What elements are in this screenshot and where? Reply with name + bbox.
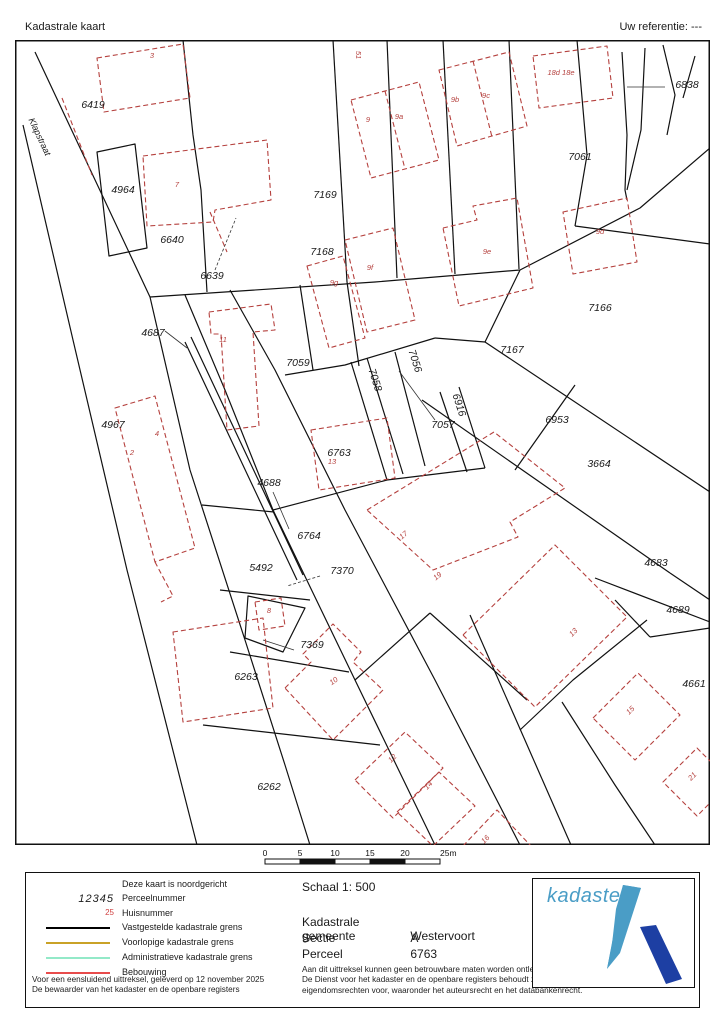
parcel-number-label: 6764 bbox=[297, 530, 321, 542]
parcel-number-label: 7370 bbox=[330, 565, 354, 577]
cadastral-map: 6419496466406639716971687061683871667167… bbox=[15, 40, 710, 845]
parcel-number-label: 6640 bbox=[160, 234, 184, 246]
scale-bar: 0510152025m bbox=[255, 846, 465, 872]
info-row: Sectie A bbox=[302, 931, 418, 945]
info-value: 6763 bbox=[410, 947, 437, 961]
scale-bar-segment bbox=[300, 859, 335, 864]
legend-symbol-housenumber: 25 bbox=[32, 908, 114, 917]
legend-line-sample-vastgesteld bbox=[46, 927, 110, 929]
legend-symbol-parcelnumber: 12345 bbox=[32, 893, 114, 905]
parcel-number-label: 7059 bbox=[286, 357, 310, 369]
info-row: Perceel 6763 bbox=[302, 947, 437, 961]
parcel-number-label: 7369 bbox=[300, 639, 324, 651]
legend-line-sample-bebouwing bbox=[46, 972, 110, 974]
house-number-label: 51 bbox=[354, 51, 363, 59]
legend-label: Voorlopige kadastrale grens bbox=[122, 937, 234, 947]
house-number-label: 9b bbox=[451, 95, 459, 104]
disclaimer-line: De bewaarder van het kadaster en de open… bbox=[32, 985, 292, 995]
kadaster-logo-box: kadaster bbox=[532, 878, 695, 988]
scale-bar-tick-label: 5 bbox=[298, 848, 303, 858]
reference-label: Uw referentie: --- bbox=[619, 21, 702, 33]
map-frame bbox=[16, 41, 710, 845]
parcel-number-label: 4688 bbox=[257, 477, 281, 489]
info-value: A bbox=[410, 931, 418, 945]
logo-dark-stroke bbox=[640, 925, 682, 984]
north-note: Deze kaart is noordgericht bbox=[122, 879, 227, 889]
scale-bar-segment bbox=[370, 859, 405, 864]
house-number-label: 9e bbox=[483, 247, 491, 256]
parcel-number-label: 7061 bbox=[568, 151, 591, 163]
map-area: 6419496466406639716971687061683871667167… bbox=[15, 40, 710, 845]
house-number-label: 11 bbox=[219, 335, 227, 344]
house-number-label: 4 bbox=[155, 429, 159, 438]
house-number-label: 9f bbox=[367, 263, 374, 272]
parcel-number-label: 7169 bbox=[313, 189, 337, 201]
parcel-number-label: 6639 bbox=[200, 270, 224, 282]
parcel-number-label: 6838 bbox=[675, 79, 699, 91]
disclaimer-left: Voor een eensluidend uittreksel, gelever… bbox=[32, 975, 292, 996]
cadastral-extract-page: { "header": { "title": "Kadastrale kaart… bbox=[0, 0, 724, 1024]
info-label: Sectie bbox=[302, 931, 407, 945]
disclaimer-line: Voor een eensluidend uittreksel, gelever… bbox=[32, 975, 292, 985]
scale-bar-tick-label: 15 bbox=[365, 848, 375, 858]
parcel-number-label: 4687 bbox=[141, 327, 166, 339]
house-number-label: 9g bbox=[330, 278, 339, 287]
parcel-number-label: 6263 bbox=[234, 671, 258, 683]
parcel-number-label: 3664 bbox=[587, 458, 611, 470]
scale-bar-segment bbox=[265, 859, 300, 864]
parcel-number-label: 4967 bbox=[101, 419, 126, 431]
house-number-label: 9d bbox=[596, 227, 605, 236]
scale-bar-tick-label: 20 bbox=[400, 848, 410, 858]
parcel-number-label: 7166 bbox=[588, 302, 612, 314]
scale-bar-segment bbox=[335, 859, 370, 864]
legend-line-sample-voorlopig bbox=[46, 942, 110, 944]
parcel-number-label: 6419 bbox=[81, 99, 105, 111]
house-number-label: 9a bbox=[395, 112, 403, 121]
parcel-number-label: 4661 bbox=[682, 678, 705, 690]
parcel-number-label: 7168 bbox=[310, 246, 334, 258]
info-value: Westervoort bbox=[410, 929, 474, 943]
logo-light-stroke2 bbox=[607, 885, 641, 969]
legend-label: Perceelnummer bbox=[122, 893, 186, 903]
parcel-number-label: 4964 bbox=[111, 184, 135, 196]
legend-label: Vastgestelde kadastrale grens bbox=[122, 922, 242, 932]
scale-bar-segment bbox=[405, 859, 440, 864]
scale-bar-tick-label: 25m bbox=[440, 848, 457, 858]
house-number-label: 13 bbox=[328, 457, 337, 466]
parcel-number-label: 7057 bbox=[431, 419, 456, 431]
house-number-label: 2 bbox=[129, 448, 135, 457]
scale-bar-tick-label: 10 bbox=[330, 848, 340, 858]
parcel-number-label: 6262 bbox=[257, 781, 281, 793]
legend-line-sample-administratief bbox=[46, 957, 110, 959]
parcel-number-label: 4683 bbox=[644, 557, 668, 569]
scale-text: Schaal 1: 500 bbox=[302, 880, 375, 894]
kadaster-logo-mark bbox=[533, 879, 693, 986]
footer-panel: Deze kaart is noordgericht 12345 Perceel… bbox=[25, 872, 700, 1008]
house-number-label: 18d 18e bbox=[547, 68, 574, 77]
page-title: Kadastrale kaart bbox=[25, 21, 105, 33]
parcel-number-label: 5492 bbox=[249, 562, 273, 574]
legend-label: Huisnummer bbox=[122, 908, 173, 918]
house-number-label: 9c bbox=[482, 91, 490, 100]
info-label: Perceel bbox=[302, 947, 407, 961]
parcel-number-label: 7167 bbox=[500, 344, 525, 356]
legend-label: Administratieve kadastrale grens bbox=[122, 952, 253, 962]
parcel-number-label: 4689 bbox=[666, 604, 690, 616]
scale-bar-tick-label: 0 bbox=[263, 848, 268, 858]
parcel-number-label: 6953 bbox=[545, 414, 569, 426]
